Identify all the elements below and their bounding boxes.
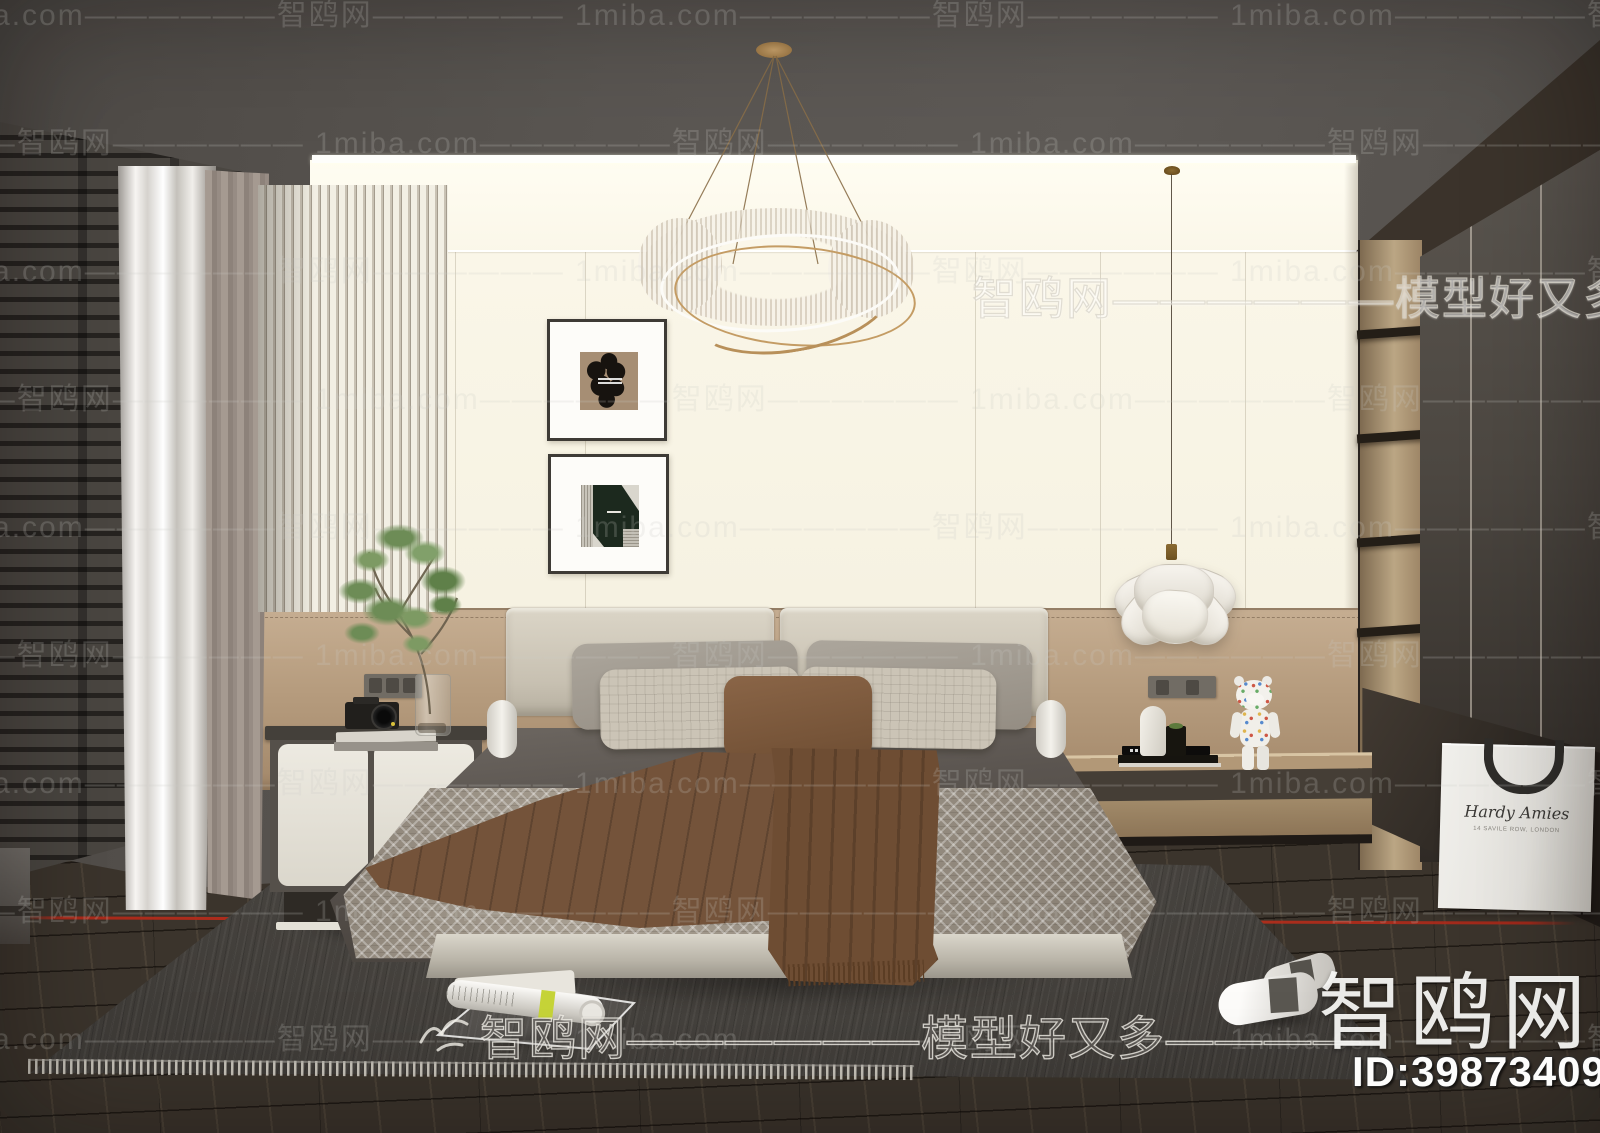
slipper-strap xyxy=(1268,977,1298,1013)
magazine-print xyxy=(446,984,517,1006)
bag-brand-text: Hardy Amies xyxy=(1440,801,1593,824)
bolster-right xyxy=(1036,700,1066,758)
bedroom-render: Hardy Amies 14 SAVILE ROW, LONDON xyxy=(0,0,1600,1133)
foliage xyxy=(352,548,390,572)
bag-address-text: 14 SAVILE ROW, LONDON xyxy=(1440,825,1593,835)
black-cup xyxy=(1166,726,1186,756)
bear-muzzle xyxy=(1246,693,1264,705)
camera-indicator xyxy=(391,722,395,726)
bear-leg xyxy=(1242,746,1254,770)
vase-soil xyxy=(418,723,446,733)
baseboard xyxy=(0,906,30,916)
bolster-left xyxy=(487,700,517,758)
switch-key xyxy=(1186,680,1199,695)
wall-art-frame-bottom xyxy=(548,454,669,574)
switch-key xyxy=(1156,680,1169,695)
wall-seam xyxy=(1245,252,1246,612)
bearbrick-figure xyxy=(1230,676,1280,772)
pendant-canopy xyxy=(1164,166,1180,175)
shelf xyxy=(1357,326,1427,340)
ring-chandelier xyxy=(628,38,928,348)
pillow-brown-center xyxy=(724,676,872,760)
shopping-bag: Hardy Amies 14 SAVILE ROW, LONDON xyxy=(1438,743,1595,912)
throw-blanket-drape xyxy=(768,748,940,988)
wall-shadow xyxy=(1344,160,1358,612)
abstract-artwork-blobs xyxy=(580,352,638,410)
shelf xyxy=(1357,430,1427,444)
blind-tape xyxy=(78,122,87,887)
bag-handle xyxy=(1483,738,1564,795)
pendant-flower-shade xyxy=(1114,552,1234,644)
nightstand-drawer xyxy=(278,744,368,886)
bear-body xyxy=(1240,709,1270,747)
abstract-artwork-green xyxy=(581,485,639,547)
bear-leg xyxy=(1257,746,1269,770)
artwork-caption-text xyxy=(598,376,622,384)
shelf xyxy=(1357,534,1427,548)
foliage xyxy=(428,594,462,616)
foliage xyxy=(402,634,434,654)
floating-console-recess xyxy=(1048,768,1372,801)
artwork-dash xyxy=(607,511,621,513)
book-on-nightstand xyxy=(334,742,438,751)
wall-seam xyxy=(1100,252,1101,612)
wall-seam xyxy=(975,252,976,612)
white-sculpture xyxy=(1140,706,1166,756)
wall-switch-right xyxy=(1148,676,1216,698)
book-pages xyxy=(1119,763,1221,767)
artwork-texture xyxy=(581,485,593,547)
artwork-texture xyxy=(623,529,639,547)
foliage xyxy=(344,622,380,644)
cup-plant xyxy=(1169,723,1183,729)
pendant-cord xyxy=(1171,174,1172,546)
shelf xyxy=(1357,624,1427,638)
magazine-band xyxy=(538,990,555,1019)
left-wall-base xyxy=(0,848,30,944)
sheer-curtain xyxy=(118,166,216,910)
foliage xyxy=(420,566,466,596)
